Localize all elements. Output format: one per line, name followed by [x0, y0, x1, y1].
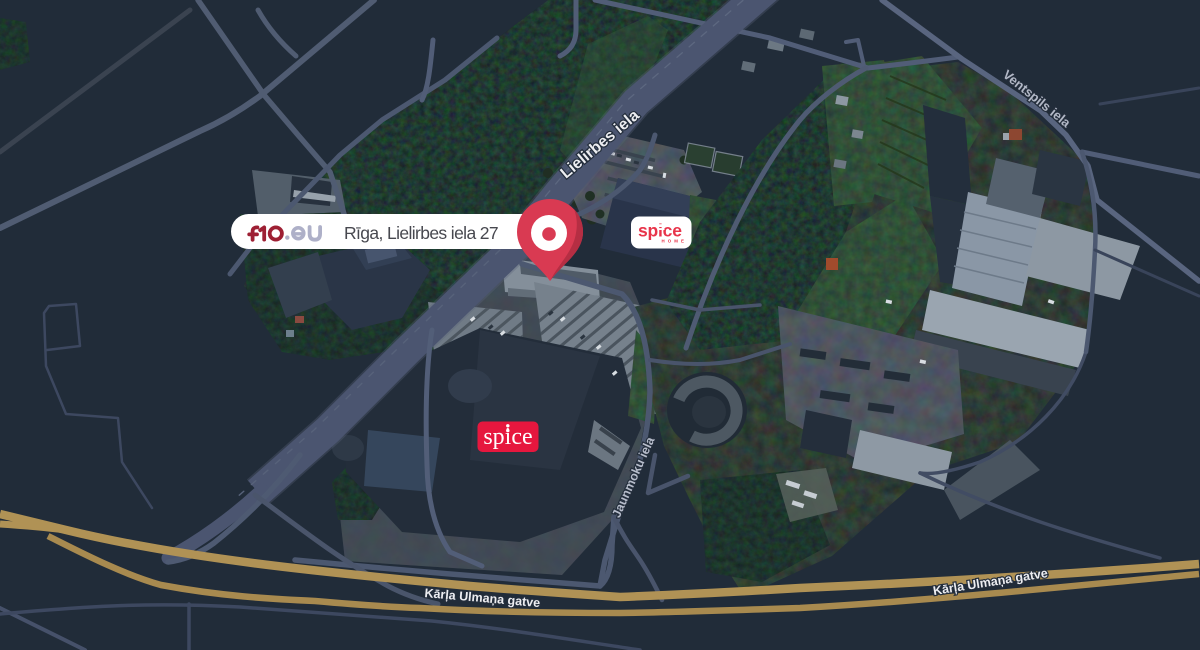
svg-text:spice: spice [638, 221, 682, 241]
svg-text:Rīga, Lielirbes iela 27: Rīga, Lielirbes iela 27 [344, 223, 498, 243]
svg-text:spice: spice [483, 424, 532, 450]
svg-text:HOME: HOME [662, 239, 688, 244]
